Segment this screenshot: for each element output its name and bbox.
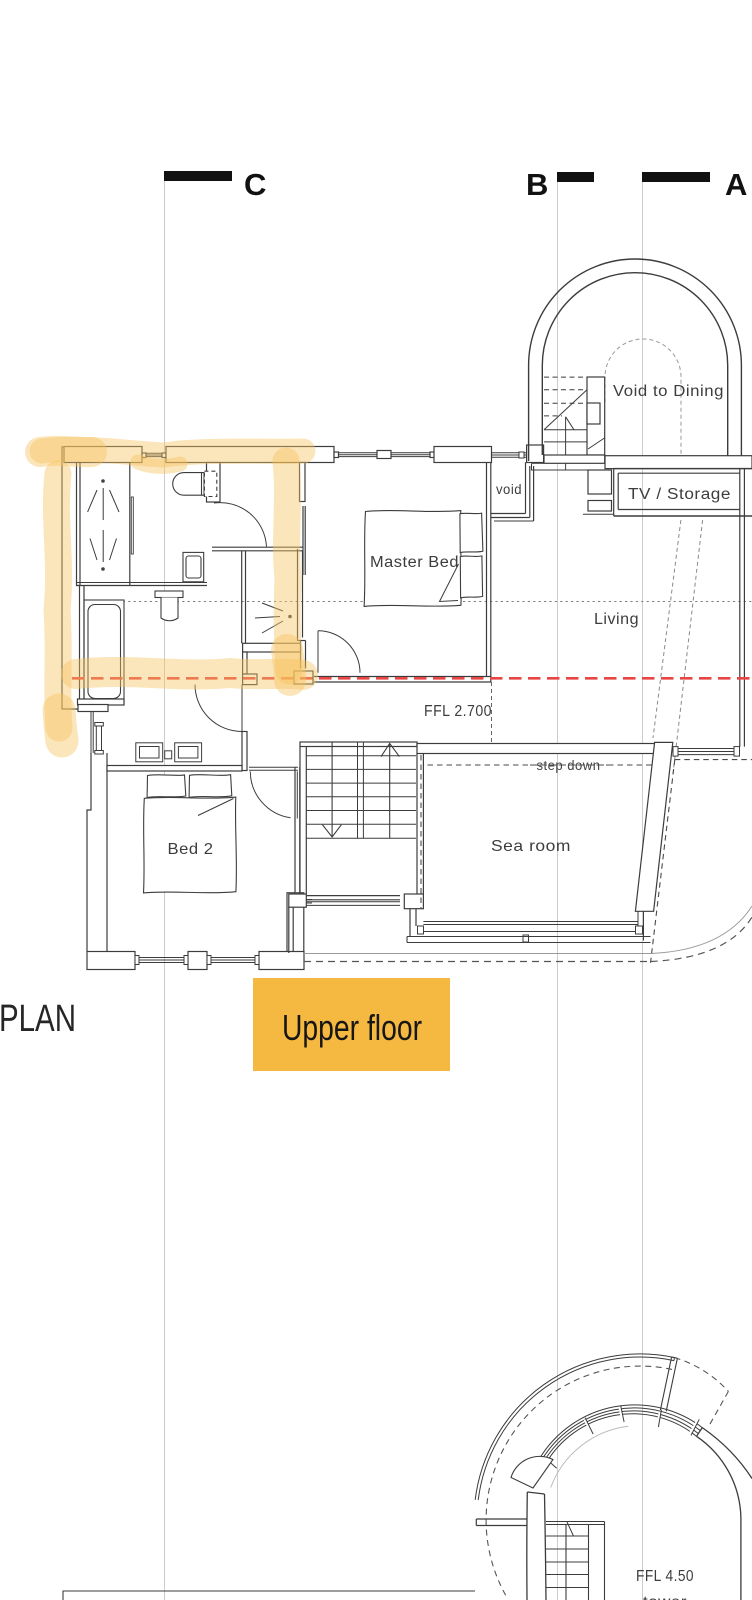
svg-text:Void to Dining: Void to Dining (613, 383, 724, 400)
svg-text:Master Bed: Master Bed (370, 554, 459, 571)
svg-text:Bed 2: Bed 2 (168, 841, 214, 858)
svg-text:C: C (244, 167, 266, 202)
svg-text:Upper floor: Upper floor (282, 1007, 422, 1048)
svg-text:PLAN: PLAN (0, 998, 76, 1040)
svg-text:void: void (496, 482, 522, 497)
svg-text:A: A (725, 167, 747, 202)
svg-text:Sea room: Sea room (491, 838, 571, 855)
svg-text:B: B (526, 167, 548, 202)
svg-text:TV / Storage: TV / Storage (628, 486, 731, 503)
svg-text:tower: tower (643, 1594, 687, 1600)
svg-text:FFL 2.700: FFL 2.700 (424, 703, 492, 720)
svg-text:FFL 4.50: FFL 4.50 (636, 1568, 694, 1585)
svg-text:Living: Living (594, 611, 639, 628)
